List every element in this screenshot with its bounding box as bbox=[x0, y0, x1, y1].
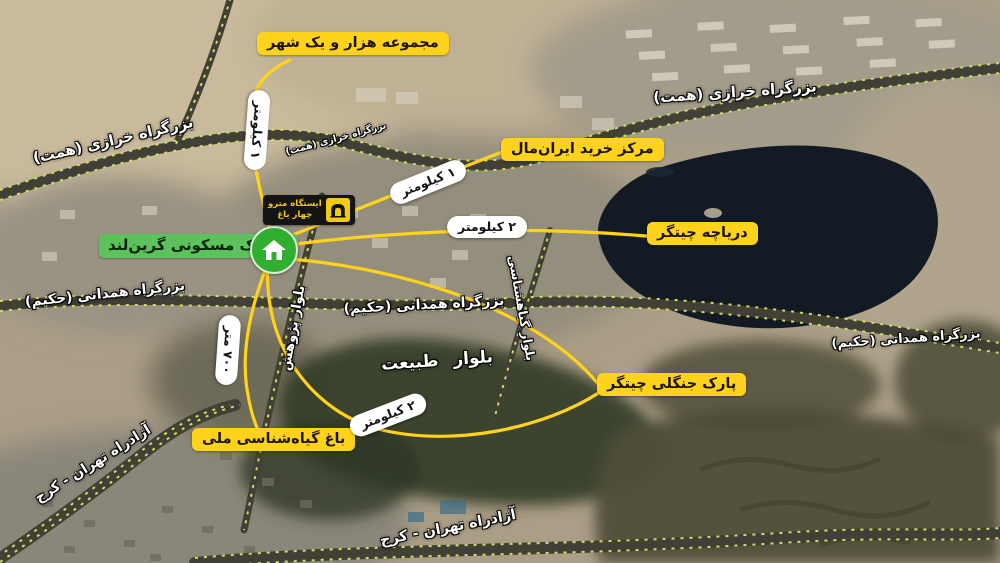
poi-label-national-botanical-garden: باغ گیاه‌شناسی ملی bbox=[192, 428, 355, 451]
metro-line2: چهار باغ bbox=[268, 210, 322, 221]
map-canvas: مجموعه هزار و یک شهر مرکز خرید ایران‌مال… bbox=[0, 0, 1000, 563]
poi-label-chitgar-lake: دریاچه چیتگر bbox=[647, 222, 758, 245]
metro-line1: ایستگاه مترو bbox=[268, 199, 322, 210]
home-icon bbox=[250, 226, 298, 274]
poi-label-iran-mall: مرکز خرید ایران‌مال bbox=[501, 138, 664, 161]
poi-label-hezar-o-yek-shahr: مجموعه هزار و یک شهر bbox=[257, 32, 449, 55]
distance-pill-2km-lake: ۲ کیلومتر bbox=[447, 216, 527, 238]
metro-icon bbox=[326, 198, 350, 222]
poi-label-chitgar-forest-park: پارک جنگلی چیتگر bbox=[597, 373, 746, 396]
metro-station-label: ایستگاه مترو چهار باغ bbox=[263, 195, 355, 225]
